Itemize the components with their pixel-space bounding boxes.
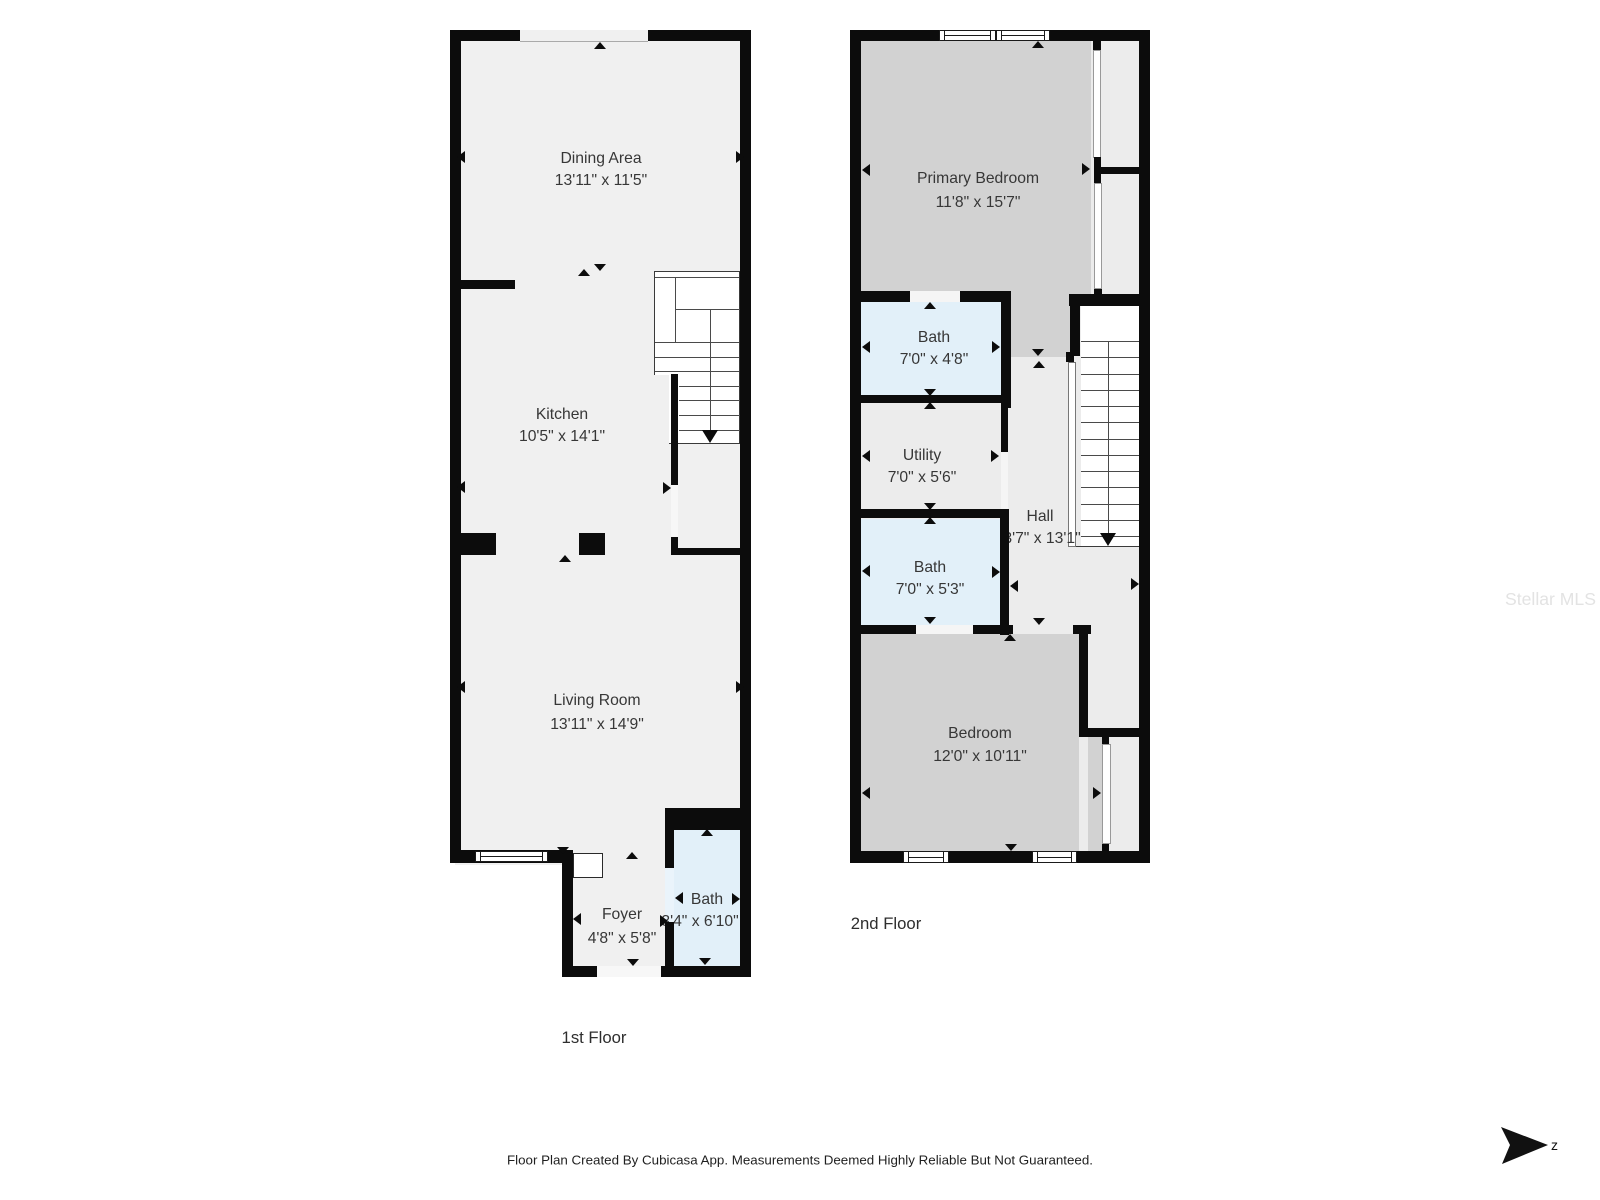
svg-text:z: z bbox=[1551, 1137, 1558, 1153]
